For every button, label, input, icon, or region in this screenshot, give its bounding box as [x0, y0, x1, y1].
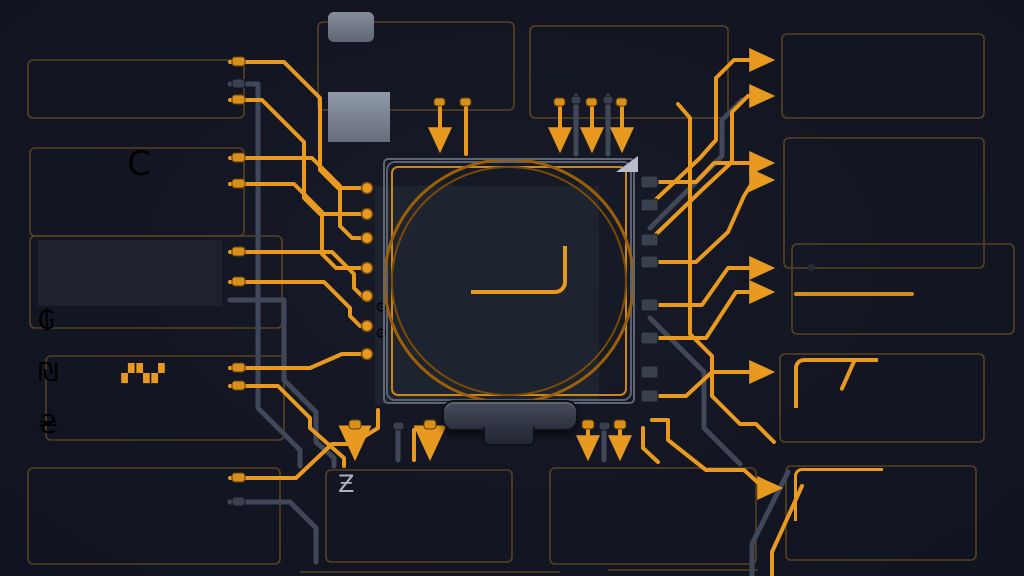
base-lip	[788, 530, 1004, 544]
chip-right	[328, 92, 390, 142]
hub-bottom-tab	[483, 427, 535, 446]
ring-pad	[552, 478, 602, 512]
board-bottom-2	[552, 462, 744, 562]
heatsink-slab	[375, 563, 479, 576]
emblem-pad: Ƶ	[330, 462, 380, 522]
hub-right-tabs	[641, 176, 658, 402]
board-left-5	[35, 460, 243, 560]
slot-bar	[375, 462, 471, 475]
label-pill-row	[375, 553, 471, 563]
board-left-4: ▞▚▞	[50, 350, 238, 436]
board-right-5	[788, 462, 1004, 560]
chip-left	[328, 12, 394, 62]
orange-ridged-block	[535, 70, 619, 116]
io-subpanel	[35, 12, 79, 78]
orange-riser	[35, 526, 40, 572]
dip-connector	[40, 218, 100, 231]
board-right-4	[786, 350, 990, 440]
gauge-dial	[788, 240, 836, 284]
main-subpanel	[786, 130, 982, 198]
main-subpanel	[535, 18, 693, 84]
left-subpanel	[552, 462, 612, 536]
main-subpanel	[35, 460, 227, 532]
panel-letter: C	[40, 144, 238, 184]
board-bottom-1: Ƶ	[330, 462, 502, 562]
main-subpanel	[782, 18, 980, 84]
board-top-2	[535, 18, 707, 108]
coin-subpanel	[38, 240, 222, 306]
pad-glyph: Ƶ	[338, 470, 372, 514]
board-right-2	[786, 130, 998, 222]
cpu-chip	[50, 380, 76, 416]
central-processor-hub: ⚙ ⚙	[375, 150, 643, 412]
board-left-2: C	[40, 136, 238, 228]
dip-connector	[35, 110, 119, 124]
main-subpanel	[328, 12, 490, 80]
io-slab	[35, 78, 117, 98]
orange-riser	[35, 572, 40, 576]
orange-tab	[552, 562, 563, 574]
triangle-icon	[616, 156, 638, 172]
main-subpanel	[788, 240, 978, 308]
board-right-3	[788, 240, 994, 332]
board-left-3: ₲ ₪ ₴	[38, 240, 234, 332]
base-lip	[782, 84, 996, 90]
circuit-diagram-scene: C ₲ ₪ ₴ ▞▚▞	[0, 0, 1024, 576]
dip-ladder	[375, 479, 397, 553]
dip-connector	[35, 516, 99, 526]
orange-dot-pad	[786, 184, 820, 226]
display-glyphs: ▞▚▞	[50, 364, 238, 384]
orange-trace-loop	[794, 358, 878, 408]
main-subpanel	[788, 462, 988, 530]
main-subpanel	[786, 350, 974, 416]
base-lip	[788, 308, 994, 314]
logic-chip	[782, 18, 832, 60]
board-top-1	[328, 12, 506, 104]
hub-board: ⚙ ⚙	[375, 186, 599, 404]
board-right-1	[782, 18, 996, 108]
glyph-display	[788, 284, 854, 324]
orange-trace	[794, 468, 883, 521]
dark-pill	[35, 460, 51, 516]
dark-screen	[535, 32, 587, 70]
base-lip	[786, 416, 990, 422]
board-left-1	[35, 12, 237, 108]
coin-glyph: ₲	[38, 306, 55, 336]
large-dark-panel	[552, 536, 660, 576]
orange-tab	[552, 550, 563, 562]
hub-left-pins	[362, 183, 373, 360]
